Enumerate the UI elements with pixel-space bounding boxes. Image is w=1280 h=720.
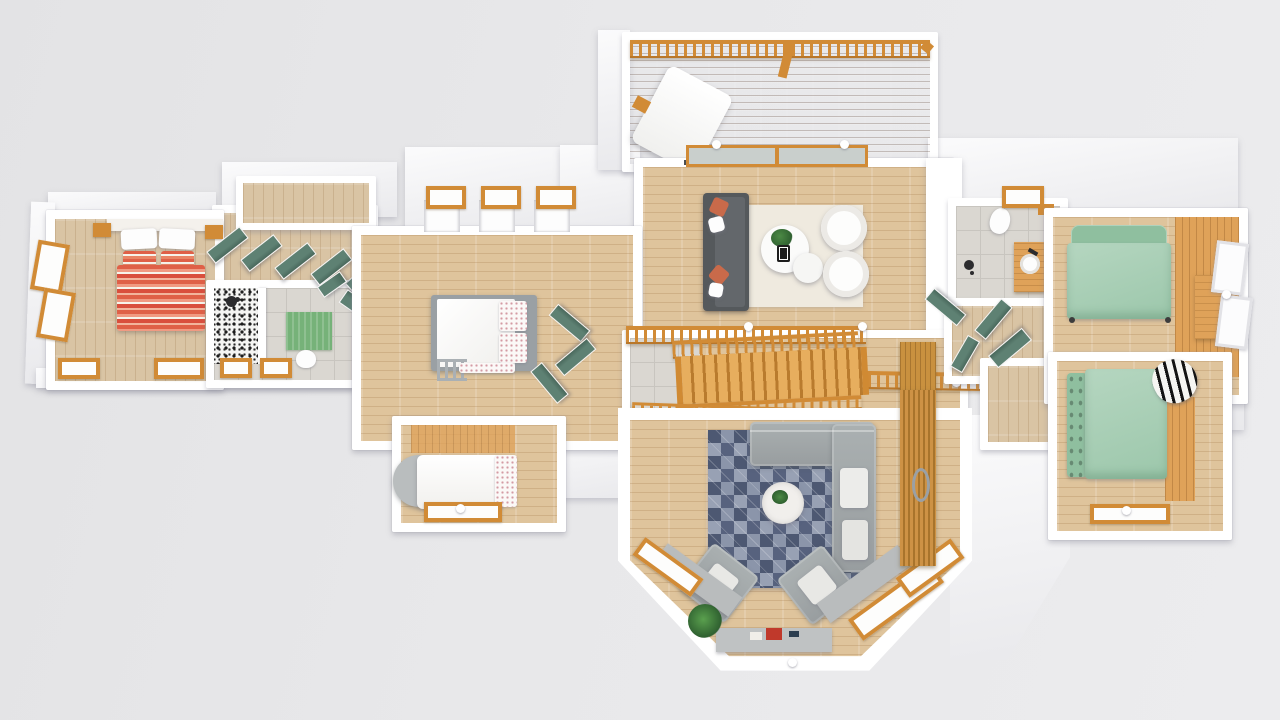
- bed-mint-top-duvet: [1067, 243, 1171, 319]
- dormer-window-3: [536, 186, 576, 209]
- dormer-window-2: [481, 186, 521, 209]
- master-nightstand-left: [93, 223, 111, 237]
- living-room: [634, 158, 954, 354]
- wall-dot-rb: [1122, 506, 1131, 515]
- vanity-sink: [1020, 254, 1040, 274]
- nook-mattress: [417, 455, 503, 509]
- deck-railing: [630, 40, 930, 58]
- bunk-foot-fabric: [459, 363, 515, 373]
- coffee-table-small: [793, 253, 823, 283]
- floor-plan-scene: [0, 0, 1280, 720]
- bed-mint-tufted-headboard: [1067, 373, 1087, 477]
- wall-dot-rt: [1222, 290, 1231, 299]
- shower-fixture-right: [964, 260, 974, 270]
- bunk-pillow-2: [499, 333, 527, 363]
- bathroom-window-1: [220, 358, 252, 378]
- slat-wall-top: [900, 342, 936, 390]
- round-armchair-2: [823, 251, 869, 297]
- master-window-bottom-2: [154, 358, 204, 379]
- master-window-bottom-1: [58, 358, 100, 379]
- sectional-pillow-1: [840, 468, 868, 508]
- bath-mat-green: [286, 312, 332, 350]
- sliding-door-2: [776, 145, 868, 167]
- sofa-pillow-white-2: [708, 282, 724, 298]
- bunk-pillow-1: [499, 301, 527, 331]
- shower-divider-wall: [258, 288, 266, 364]
- sectional-pillow-2: [842, 520, 868, 560]
- bay-plant: [688, 604, 722, 638]
- family-table-plant: [772, 490, 788, 504]
- bathroom-window-2: [260, 358, 292, 378]
- nook-pillow: [495, 455, 517, 507]
- wall-dot-bay: [788, 658, 797, 667]
- master-pillow-white-2: [159, 228, 196, 250]
- bedroom-rb-orange-strip: [1165, 397, 1195, 501]
- barn-door-handle: [912, 468, 930, 502]
- bed-mint-top-pillows: [1071, 225, 1167, 245]
- bedroom-rt-window-1: [1211, 240, 1249, 296]
- wall-dot-nook: [456, 504, 465, 513]
- master-nightstand-right: [205, 225, 223, 239]
- master-duvet: [117, 265, 205, 331]
- round-armchair-1: [821, 205, 867, 251]
- nook-accent-wall: [411, 425, 515, 453]
- wall-dot-stair-2: [858, 322, 867, 331]
- closet-tl-floor: [243, 183, 369, 223]
- wall-dot-stair-1: [744, 322, 753, 331]
- bench-books: [766, 628, 782, 640]
- master-pillow-white-1: [121, 228, 158, 250]
- sliding-door-1: [686, 145, 778, 167]
- dormer-window-1: [426, 186, 466, 209]
- shower-head: [226, 296, 237, 307]
- bedroom-rt-window-2: [1215, 294, 1253, 350]
- bed-mint-top-feet: [1069, 317, 1075, 323]
- closet-top-left: [236, 176, 376, 230]
- wall-dot-living-1: [712, 140, 721, 149]
- wall-dot-living-2: [840, 140, 849, 149]
- sectional-cushion-line: [750, 430, 874, 432]
- toilet-left: [296, 350, 316, 368]
- table-book: [777, 245, 790, 262]
